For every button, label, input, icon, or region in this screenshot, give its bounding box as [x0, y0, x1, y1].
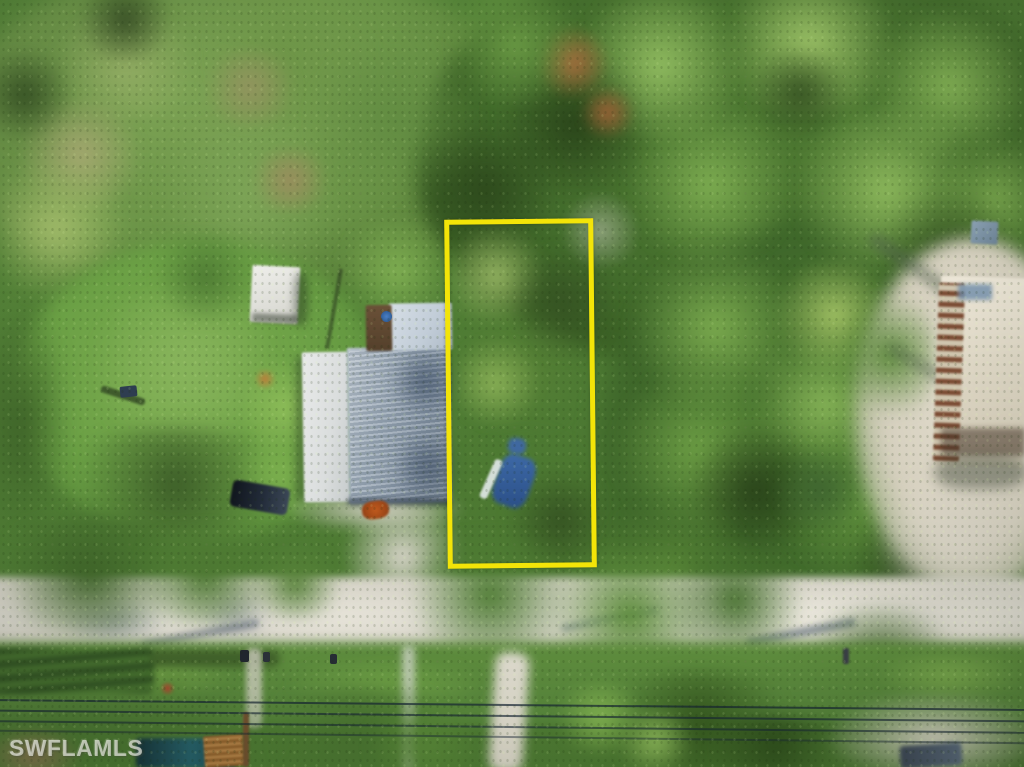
mls-watermark: SWFLAMLS: [9, 737, 143, 760]
aerial-photo: SWFLAMLS: [0, 0, 1024, 767]
lot-boundary-outline: [444, 218, 597, 569]
